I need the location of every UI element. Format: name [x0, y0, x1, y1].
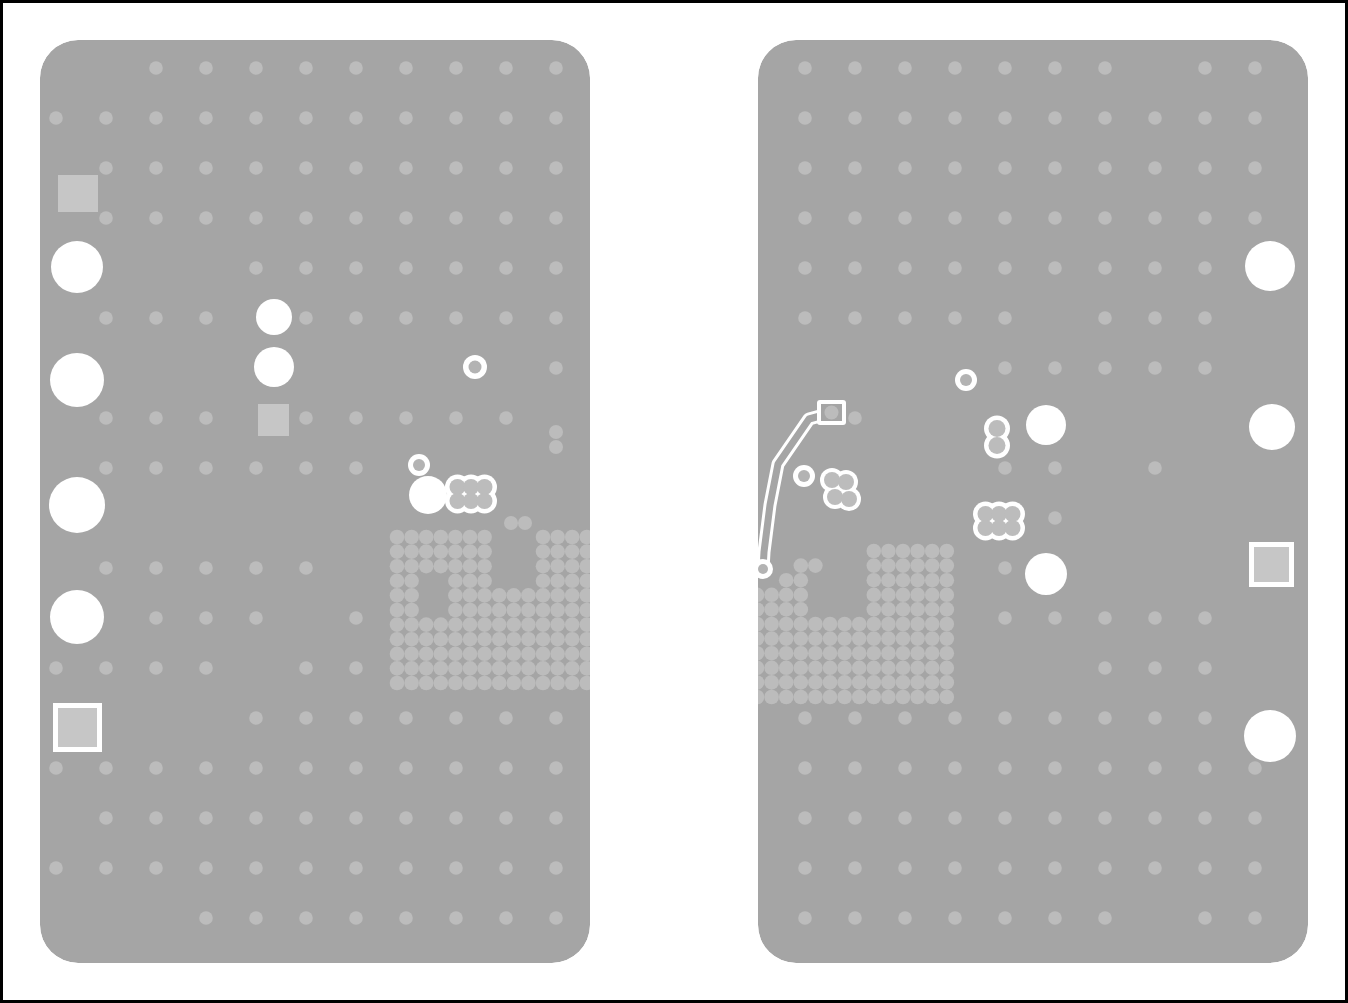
- array-via-dot: [404, 632, 419, 647]
- stitch-via-dot: [848, 811, 862, 825]
- array-via-dot: [779, 602, 794, 617]
- array-via-dot: [419, 647, 434, 662]
- array-via-dot: [910, 690, 925, 705]
- stitch-via-dot: [449, 811, 463, 825]
- stitch-via-dot: [1148, 261, 1162, 275]
- stitch-via-dot: [499, 761, 513, 775]
- stitch-via-dot: [1198, 311, 1212, 325]
- stitch-via-dot: [948, 861, 962, 875]
- stitch-via-dot: [1198, 611, 1212, 625]
- stitch-via-dot: [399, 711, 413, 725]
- stitch-via-dot: [1098, 111, 1112, 125]
- array-via-dot: [550, 559, 565, 574]
- stitch-via-dot: [249, 611, 263, 625]
- array-via-dot: [867, 617, 882, 632]
- array-via-dot: [448, 544, 463, 559]
- stitch-via-dot: [1048, 361, 1062, 375]
- stitch-via-dot: [349, 111, 363, 125]
- stitch-via-dot: [249, 561, 263, 575]
- stitch-via-dot: [998, 161, 1012, 175]
- stitch-via-dot: [1148, 211, 1162, 225]
- array-via-dot: [925, 617, 940, 632]
- stitch-via-dot: [1148, 761, 1162, 775]
- extra-via-dot: [549, 425, 563, 439]
- stitch-via-dot: [349, 761, 363, 775]
- array-via-dot: [434, 632, 449, 647]
- stitch-via-dot: [199, 861, 213, 875]
- array-via-dot: [550, 544, 565, 559]
- array-via-dot: [434, 559, 449, 574]
- stitch-via-dot: [948, 761, 962, 775]
- stitch-via-dot: [399, 161, 413, 175]
- array-via-dot: [390, 632, 405, 647]
- array-via-dot: [823, 646, 838, 661]
- stitch-via-dot: [1198, 111, 1212, 125]
- stitch-via-dot: [798, 211, 812, 225]
- array-via-dot: [419, 559, 434, 574]
- array-via-dot: [881, 675, 896, 690]
- array-via-dot: [492, 661, 507, 676]
- array-via-dot: [764, 646, 779, 661]
- stitch-via-dot: [798, 761, 812, 775]
- stitch-via-dot: [998, 611, 1012, 625]
- stitch-via-dot: [349, 811, 363, 825]
- array-via-dot: [881, 646, 896, 661]
- array-via-dot: [565, 574, 580, 589]
- array-via-dot: [779, 573, 794, 588]
- array-via-dot: [881, 588, 896, 603]
- stitch-via-dot: [1048, 911, 1062, 925]
- stitch-via-dot: [1248, 761, 1262, 775]
- drill-hole: [50, 590, 104, 644]
- array-via-dot: [837, 631, 852, 646]
- array-via-dot: [925, 675, 940, 690]
- stitch-via-dot: [349, 661, 363, 675]
- array-via-dot: [550, 617, 565, 632]
- stitch-via-dot: [549, 761, 563, 775]
- stitch-via-dot: [1148, 111, 1162, 125]
- array-via-dot: [419, 530, 434, 545]
- stitch-via-dot: [149, 761, 163, 775]
- stitch-via-dot: [898, 311, 912, 325]
- array-via-dot: [390, 574, 405, 589]
- array-via-dot: [477, 530, 492, 545]
- array-via-dot: [808, 646, 823, 661]
- stitch-via-dot: [898, 911, 912, 925]
- array-via-dot: [477, 574, 492, 589]
- cluster-via-dot: [477, 493, 493, 509]
- stitch-via-dot: [249, 161, 263, 175]
- array-via-dot: [463, 588, 478, 603]
- stitch-via-dot: [299, 861, 313, 875]
- array-via-dot: [896, 588, 911, 603]
- cluster-via-dot: [477, 479, 493, 495]
- array-via-dot: [940, 602, 955, 617]
- stitch-via-dot: [1198, 761, 1212, 775]
- stitch-via-dot: [149, 211, 163, 225]
- stitch-via-dot: [199, 311, 213, 325]
- stitch-via-dot: [1048, 261, 1062, 275]
- drill-hole: [1025, 553, 1067, 595]
- array-via-dot: [434, 617, 449, 632]
- stitch-via-dot: [199, 811, 213, 825]
- stitch-via-dot: [1098, 361, 1112, 375]
- array-via-dot: [477, 632, 492, 647]
- array-via-dot: [896, 631, 911, 646]
- via-ring-center: [469, 361, 482, 374]
- array-via-dot: [448, 574, 463, 589]
- cluster-via-dot: [1005, 506, 1021, 522]
- drill-hole: [49, 477, 105, 533]
- stitch-via-dot: [1148, 461, 1162, 475]
- stitch-via-dot: [199, 211, 213, 225]
- array-via-dot: [940, 675, 955, 690]
- array-via-dot: [448, 588, 463, 603]
- stitch-via-dot: [449, 161, 463, 175]
- array-via-dot: [823, 631, 838, 646]
- array-via-dot: [896, 558, 911, 573]
- stitch-via-dot: [798, 111, 812, 125]
- stitch-via-dot: [299, 411, 313, 425]
- stitch-via-dot: [848, 161, 862, 175]
- stitch-via-dot: [848, 761, 862, 775]
- stitch-via-dot: [299, 311, 313, 325]
- array-via-dot: [536, 617, 551, 632]
- stitch-via-dot: [948, 111, 962, 125]
- stitch-via-dot: [898, 111, 912, 125]
- array-via-dot: [580, 544, 595, 559]
- stitch-via-dot: [798, 261, 812, 275]
- extra-via-dot: [518, 516, 532, 530]
- array-via-dot: [550, 588, 565, 603]
- array-via-dot: [521, 617, 536, 632]
- via-ring-center: [798, 470, 810, 482]
- array-via-dot: [448, 530, 463, 545]
- stitch-via-dot: [249, 461, 263, 475]
- stitch-via-dot: [848, 311, 862, 325]
- stitch-via-dot: [1048, 461, 1062, 475]
- array-via-dot: [390, 647, 405, 662]
- array-via-dot: [565, 588, 580, 603]
- array-via-dot: [764, 675, 779, 690]
- array-via-dot: [463, 559, 478, 574]
- array-via-dot: [390, 588, 405, 603]
- stitch-via-dot: [449, 711, 463, 725]
- stitch-via-dot: [349, 461, 363, 475]
- stitch-via-dot: [549, 861, 563, 875]
- array-via-dot: [434, 530, 449, 545]
- array-via-dot: [925, 631, 940, 646]
- stitch-via-dot: [449, 111, 463, 125]
- array-via-dot: [823, 675, 838, 690]
- array-via-dot: [434, 661, 449, 676]
- array-via-dot: [390, 544, 405, 559]
- array-via-dot: [477, 676, 492, 691]
- array-via-dot: [852, 617, 867, 632]
- stitch-via-dot: [898, 261, 912, 275]
- array-via-dot: [940, 690, 955, 705]
- stitch-via-dot: [549, 61, 563, 75]
- stitch-via-dot: [199, 161, 213, 175]
- stitch-via-dot: [1148, 611, 1162, 625]
- array-via-dot: [463, 617, 478, 632]
- stitch-via-dot: [1148, 161, 1162, 175]
- array-via-dot: [463, 647, 478, 662]
- array-via-dot: [463, 676, 478, 691]
- extra-via-dot: [504, 516, 518, 530]
- array-via-dot: [852, 631, 867, 646]
- stitch-via-dot: [299, 111, 313, 125]
- stitch-via-dot: [49, 861, 63, 875]
- stitch-via-dot: [299, 561, 313, 575]
- stitch-via-dot: [199, 111, 213, 125]
- stitch-via-dot: [149, 461, 163, 475]
- stitch-via-dot: [1198, 711, 1212, 725]
- stitch-via-dot: [1198, 211, 1212, 225]
- array-via-dot: [837, 617, 852, 632]
- stitch-via-dot: [249, 911, 263, 925]
- pcb-layer-view: [0, 0, 1348, 1003]
- stitch-via-dot: [349, 311, 363, 325]
- array-via-dot: [463, 574, 478, 589]
- array-via-dot: [580, 617, 595, 632]
- array-via-dot: [463, 530, 478, 545]
- array-via-dot: [536, 588, 551, 603]
- array-via-dot: [837, 646, 852, 661]
- stitch-via-dot: [149, 161, 163, 175]
- array-via-dot: [896, 675, 911, 690]
- stitch-via-dot: [1098, 911, 1112, 925]
- array-via-dot: [940, 617, 955, 632]
- array-via-dot: [565, 559, 580, 574]
- stitch-via-dot: [349, 161, 363, 175]
- array-via-dot: [477, 603, 492, 618]
- array-via-dot: [925, 661, 940, 676]
- stitch-via-dot: [998, 911, 1012, 925]
- stitch-via-dot: [499, 411, 513, 425]
- stitch-via-dot: [49, 111, 63, 125]
- stitch-via-dot: [49, 761, 63, 775]
- array-via-dot: [565, 603, 580, 618]
- stitch-via-dot: [449, 911, 463, 925]
- array-via-dot: [550, 530, 565, 545]
- array-via-dot: [867, 544, 882, 559]
- stitch-via-dot: [1098, 211, 1112, 225]
- array-via-dot: [463, 632, 478, 647]
- stitch-via-dot: [848, 911, 862, 925]
- array-via-dot: [565, 676, 580, 691]
- array-via-dot: [794, 690, 809, 705]
- array-via-dot: [779, 617, 794, 632]
- stitch-via-dot: [549, 811, 563, 825]
- array-via-dot: [881, 617, 896, 632]
- stitch-via-dot: [798, 311, 812, 325]
- stitch-via-dot: [399, 911, 413, 925]
- array-via-dot: [580, 676, 595, 691]
- array-via-dot: [521, 661, 536, 676]
- array-via-dot: [492, 603, 507, 618]
- stitch-via-dot: [199, 911, 213, 925]
- stitch-via-dot: [1048, 211, 1062, 225]
- stitch-via-dot: [1148, 661, 1162, 675]
- stitch-via-dot: [1048, 161, 1062, 175]
- stitch-via-dot: [249, 211, 263, 225]
- stitch-via-dot: [1098, 761, 1112, 775]
- stitch-via-dot: [1248, 161, 1262, 175]
- array-via-dot: [794, 631, 809, 646]
- stitch-via-dot: [199, 61, 213, 75]
- array-via-dot: [463, 603, 478, 618]
- stitch-via-dot: [948, 161, 962, 175]
- array-via-dot: [779, 588, 794, 603]
- array-via-dot: [837, 675, 852, 690]
- stitch-via-dot: [998, 111, 1012, 125]
- stitch-via-dot: [998, 861, 1012, 875]
- drill-hole: [1026, 405, 1066, 445]
- array-via-dot: [794, 558, 809, 573]
- stitch-via-dot: [499, 911, 513, 925]
- stitch-via-dot: [99, 861, 113, 875]
- array-via-dot: [867, 675, 882, 690]
- stitch-via-dot: [299, 211, 313, 225]
- smd-pad-square: [58, 175, 98, 212]
- stitch-via-dot: [199, 611, 213, 625]
- array-via-dot: [477, 588, 492, 603]
- array-via-dot: [852, 646, 867, 661]
- array-via-dot: [794, 617, 809, 632]
- stitch-via-dot: [149, 311, 163, 325]
- stitch-via-dot: [249, 761, 263, 775]
- stitch-via-dot: [998, 811, 1012, 825]
- stitch-via-dot: [1198, 661, 1212, 675]
- stitch-via-dot: [499, 161, 513, 175]
- array-via-dot: [550, 661, 565, 676]
- pcb-canvas: [0, 0, 1348, 1003]
- drill-hole: [409, 476, 447, 514]
- array-via-dot: [521, 676, 536, 691]
- stitch-via-dot: [349, 411, 363, 425]
- array-via-dot: [750, 631, 765, 646]
- stitch-via-dot: [199, 661, 213, 675]
- stitch-via-dot: [948, 811, 962, 825]
- stitch-via-dot: [499, 111, 513, 125]
- array-via-dot: [940, 544, 955, 559]
- stitch-via-dot: [349, 261, 363, 275]
- cluster-via-dot: [838, 474, 854, 490]
- stitch-via-dot: [449, 411, 463, 425]
- array-via-dot: [550, 632, 565, 647]
- array-via-dot: [390, 661, 405, 676]
- array-via-dot: [565, 530, 580, 545]
- stitch-via-dot: [1198, 911, 1212, 925]
- array-via-dot: [808, 690, 823, 705]
- array-via-dot: [867, 588, 882, 603]
- array-via-dot: [404, 544, 419, 559]
- array-via-dot: [580, 588, 595, 603]
- array-via-dot: [794, 588, 809, 603]
- stitch-via-dot: [848, 711, 862, 725]
- stitch-via-dot: [848, 411, 862, 425]
- stitch-via-dot: [299, 711, 313, 725]
- array-via-dot: [867, 602, 882, 617]
- stitch-via-dot: [399, 111, 413, 125]
- stitch-via-dot: [998, 311, 1012, 325]
- stitch-via-dot: [399, 761, 413, 775]
- stitch-via-dot: [1248, 211, 1262, 225]
- stitch-via-dot: [848, 211, 862, 225]
- array-via-dot: [550, 574, 565, 589]
- array-via-dot: [521, 603, 536, 618]
- array-via-dot: [580, 661, 595, 676]
- array-via-dot: [536, 559, 551, 574]
- array-via-dot: [779, 675, 794, 690]
- stitch-via-dot: [199, 761, 213, 775]
- array-via-dot: [390, 530, 405, 545]
- stitch-via-dot: [1048, 611, 1062, 625]
- stitch-via-dot: [99, 761, 113, 775]
- array-via-dot: [536, 530, 551, 545]
- array-via-dot: [536, 544, 551, 559]
- stitch-via-dot: [449, 261, 463, 275]
- array-via-dot: [764, 690, 779, 705]
- array-via-dot: [881, 661, 896, 676]
- array-via-dot: [867, 661, 882, 676]
- stitch-via-dot: [948, 311, 962, 325]
- stitch-via-dot: [948, 211, 962, 225]
- array-via-dot: [940, 661, 955, 676]
- array-via-dot: [750, 588, 765, 603]
- array-via-dot: [925, 558, 940, 573]
- stitch-via-dot: [299, 761, 313, 775]
- drill-hole: [1245, 241, 1295, 291]
- array-via-dot: [852, 661, 867, 676]
- array-via-dot: [925, 602, 940, 617]
- drill-hole: [254, 347, 294, 387]
- array-via-dot: [477, 647, 492, 662]
- stitch-via-dot: [1148, 711, 1162, 725]
- stitch-via-dot: [1048, 61, 1062, 75]
- drill-hole: [51, 241, 103, 293]
- stitch-via-dot: [1098, 661, 1112, 675]
- array-via-dot: [823, 690, 838, 705]
- array-via-dot: [808, 617, 823, 632]
- array-via-dot: [492, 647, 507, 662]
- stitch-via-dot: [1048, 761, 1062, 775]
- array-via-dot: [390, 617, 405, 632]
- array-via-dot: [448, 661, 463, 676]
- stitch-via-dot: [998, 61, 1012, 75]
- stitch-via-dot: [798, 911, 812, 925]
- array-via-dot: [808, 558, 823, 573]
- stitch-via-dot: [898, 61, 912, 75]
- array-via-dot: [764, 661, 779, 676]
- stitch-via-dot: [449, 861, 463, 875]
- stitch-via-dot: [1198, 61, 1212, 75]
- stitch-via-dot: [149, 61, 163, 75]
- array-via-dot: [404, 603, 419, 618]
- stitch-via-dot: [898, 761, 912, 775]
- stitch-via-dot: [898, 211, 912, 225]
- array-via-dot: [940, 573, 955, 588]
- stitch-via-dot: [199, 411, 213, 425]
- right-board: [750, 40, 1308, 963]
- stitch-via-dot: [848, 61, 862, 75]
- array-via-dot: [867, 646, 882, 661]
- array-via-dot: [565, 632, 580, 647]
- array-via-dot: [794, 675, 809, 690]
- stitch-via-dot: [349, 211, 363, 225]
- stitch-via-dot: [1048, 861, 1062, 875]
